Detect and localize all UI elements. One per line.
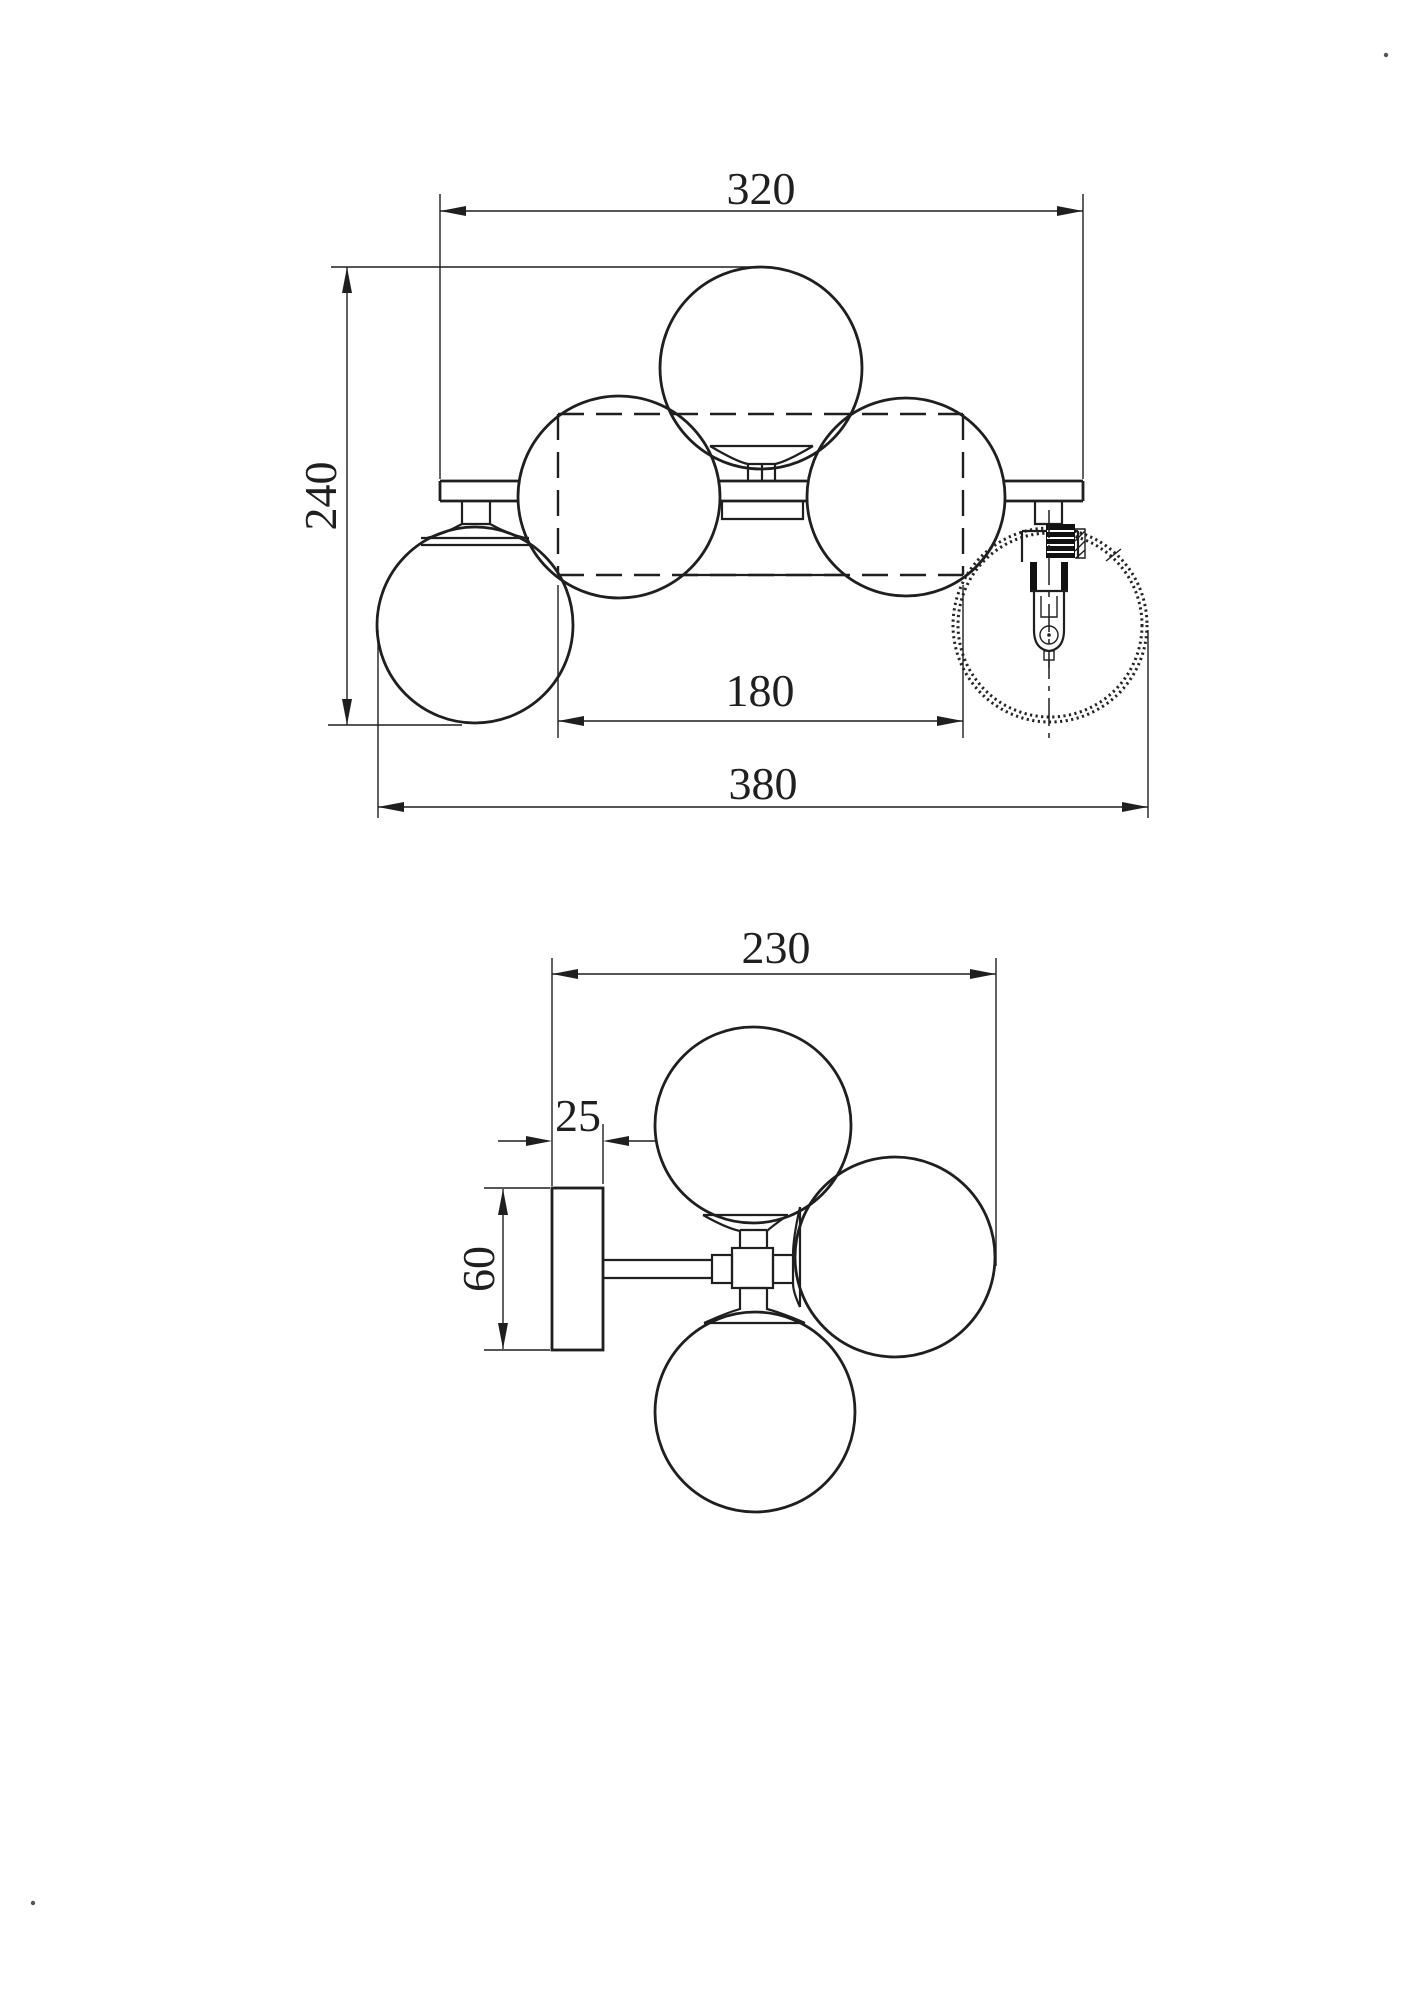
speck-top-right [1384,53,1388,57]
dim-label-180: 180 [726,665,795,716]
mounting-bar [440,481,1083,519]
side-view: 230 25 60 [453,922,996,1512]
lamp-socket-section [1022,501,1085,742]
hidden-canopy-outline [558,414,963,575]
drawing-canvas: 320 240 180 380 [0,0,1414,2000]
side-globe-bottom [655,1288,855,1512]
dim-label-25: 25 [555,1090,601,1141]
speck-bottom-left [31,1901,35,1905]
dim-label-320: 320 [727,163,796,214]
dim-canopy-width: 180 [558,585,963,738]
dim-backplate-thickness: 25 [498,1090,657,1184]
dim-backplate-height: 60 [453,1188,550,1350]
glass-globe-mid-left [518,396,720,598]
backplate [552,1188,603,1350]
dim-label-240: 240 [295,462,346,531]
dim-overall-width: 380 [378,630,1148,818]
glass-globe-bottom-right-cutaway [953,501,1147,742]
arm-and-hub [603,1248,793,1288]
dim-bar-width: 320 [440,163,1083,479]
dim-label-380: 380 [729,758,798,809]
dim-overall-height: 240 [295,267,770,725]
side-globe-right [793,1157,995,1357]
glass-globe-top [660,267,862,481]
side-globe-top [655,1027,851,1248]
front-view: 320 240 180 380 [295,163,1148,818]
technical-drawing: 320 240 180 380 [0,0,1414,2000]
glass-globe-bottom-left [377,501,573,723]
dim-label-230: 230 [742,922,811,973]
glass-globe-mid-right [807,398,1005,596]
dim-label-60: 60 [453,1246,504,1292]
